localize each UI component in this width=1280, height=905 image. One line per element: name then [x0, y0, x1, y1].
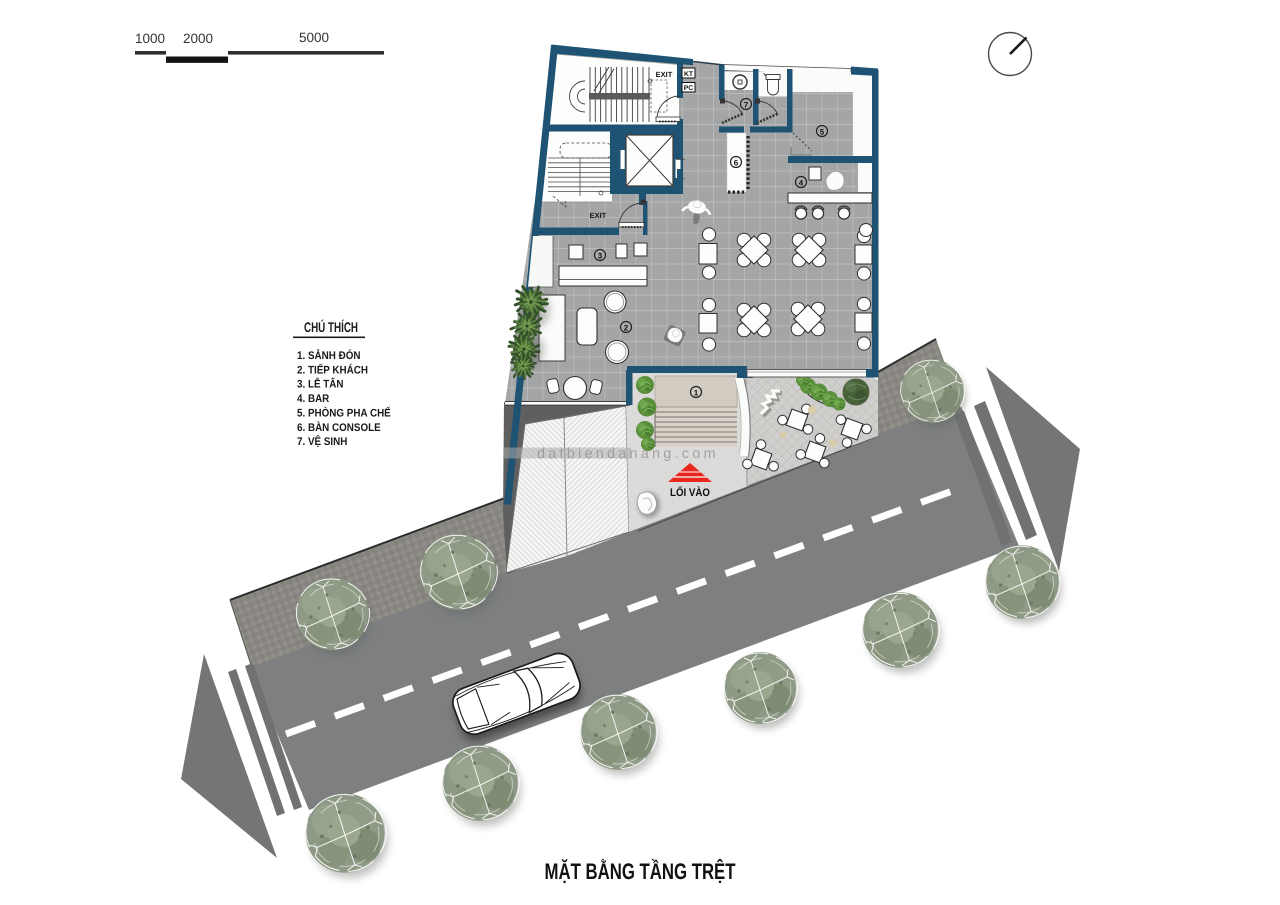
svg-text:2. TIẾP KHÁCH: 2. TIẾP KHÁCH — [297, 363, 368, 376]
svg-text:1. SẢNH ĐÓN: 1. SẢNH ĐÓN — [297, 349, 361, 362]
svg-text:4. BAR: 4. BAR — [297, 393, 329, 405]
svg-text:7. VỆ SINH: 7. VỆ SINH — [297, 435, 347, 448]
svg-text:7: 7 — [744, 101, 749, 110]
svg-text:3: 3 — [598, 252, 603, 261]
svg-text:EXIT: EXIT — [656, 70, 673, 79]
svg-text:1: 1 — [694, 389, 699, 398]
svg-text:1000: 1000 — [135, 31, 165, 46]
svg-text:PC: PC — [684, 85, 694, 92]
svg-text:2: 2 — [624, 324, 629, 333]
svg-text:MẶT BẰNG TẦNG TRỆT: MẶT BẰNG TẦNG TRỆT — [545, 858, 736, 884]
svg-text:datbiendanang.com: datbiendanang.com — [537, 446, 719, 462]
svg-text:6: 6 — [734, 159, 739, 168]
svg-text:CHÚ THÍCH: CHÚ THÍCH — [304, 319, 358, 335]
svg-text:6. BÀN CONSOLE: 6. BÀN CONSOLE — [297, 421, 381, 434]
svg-text:2000: 2000 — [183, 31, 213, 46]
svg-text:5. PHÒNG PHA CHẾ: 5. PHÒNG PHA CHẾ — [297, 406, 391, 419]
svg-text:EXIT: EXIT — [590, 211, 607, 220]
svg-text:KT: KT — [684, 71, 694, 78]
svg-text:LỐI VÀO: LỐI VÀO — [670, 486, 710, 499]
svg-text:3. LỄ TÂN: 3. LỄ TÂN — [297, 378, 344, 391]
svg-text:4: 4 — [799, 179, 804, 188]
svg-text:5000: 5000 — [299, 30, 329, 45]
svg-text:5: 5 — [820, 128, 825, 137]
